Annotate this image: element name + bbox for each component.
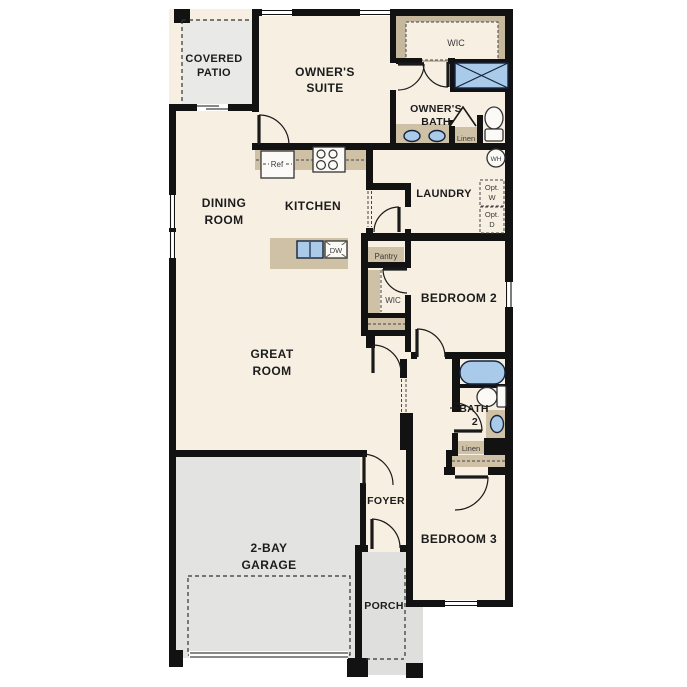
window <box>262 9 292 16</box>
owner-linen-label: Linen <box>457 134 475 143</box>
patio-slider-door <box>197 104 228 111</box>
owners-bath-label: BATH <box>421 116 451 128</box>
opt-dryer-label: Opt. <box>485 210 499 219</box>
owner-sink-left <box>404 131 420 142</box>
foyer-label: FOYER <box>367 495 405 507</box>
floor-plan-canvas: COVERED PATIO OWNER'S SUITE WIC OWNER'S … <box>0 0 687 687</box>
bedroom2-wic-shelf <box>368 270 380 313</box>
bedroom3-label: BEDROOM 3 <box>421 532 497 546</box>
owners-bath-label: OWNER'S <box>410 103 462 115</box>
great-room-label: ROOM <box>253 364 292 378</box>
opt-washer-label: W <box>488 193 496 202</box>
owners-suite-label: SUITE <box>306 81 343 95</box>
bath2-label: 2 <box>472 416 478 428</box>
porch-floor <box>362 552 406 675</box>
great-room-label: GREAT <box>250 347 293 361</box>
owner-wic-label: WIC <box>447 38 465 48</box>
kitchen-sink <box>297 241 323 258</box>
shower <box>455 63 508 88</box>
bathtub <box>460 361 505 384</box>
bath2-linen-label: Linen <box>462 444 480 453</box>
window <box>360 9 390 16</box>
opt-dryer-label: D <box>489 220 495 229</box>
floor-plan: COVERED PATIO OWNER'S SUITE WIC OWNER'S … <box>0 0 687 687</box>
owners-suite-label: OWNER'S <box>295 65 355 79</box>
laundry-label: LAUNDRY <box>416 188 472 200</box>
kitchen-label: KITCHEN <box>285 199 341 213</box>
window <box>169 232 176 258</box>
refrigerator-label: Ref <box>271 160 284 169</box>
window <box>445 600 477 607</box>
water-heater-label: WH <box>491 156 502 163</box>
covered-patio-label: COVERED <box>185 53 242 65</box>
bath2-sink <box>491 416 504 433</box>
pantry-label: Pantry <box>374 252 397 261</box>
bath2-label: BATH <box>459 403 489 415</box>
owner-toilet <box>485 107 503 141</box>
window <box>505 282 513 307</box>
dining-room-label: ROOM <box>205 213 244 227</box>
dishwasher-label: DW <box>330 246 343 255</box>
window <box>169 195 176 228</box>
porch-side-strip <box>406 607 423 663</box>
covered-patio-label: PATIO <box>197 67 231 79</box>
bedroom2-wic-label: WIC <box>385 296 401 305</box>
bedroom2-label: BEDROOM 2 <box>421 291 497 305</box>
garage-door <box>189 651 348 659</box>
garage-label: 2-BAY <box>251 541 288 555</box>
stove <box>313 147 345 172</box>
garage-label: GARAGE <box>241 558 296 572</box>
owner-sink-right <box>429 131 445 142</box>
dining-room-label: DINING <box>202 196 246 210</box>
porch-label: PORCH <box>364 600 403 612</box>
opt-washer-label: Opt. <box>485 183 499 192</box>
